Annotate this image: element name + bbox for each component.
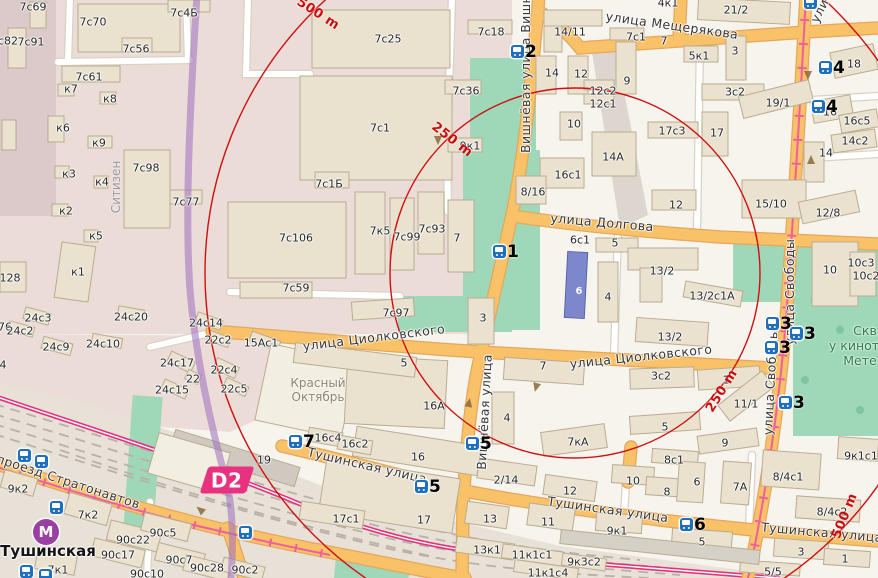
bus-stop-icon[interactable] (466, 437, 479, 450)
bus-stop-number: 3 (793, 393, 805, 413)
bus-stop-icon[interactable] (18, 449, 31, 462)
bus-stop-icon[interactable] (804, 0, 817, 9)
bus-stop-icon[interactable] (50, 501, 63, 514)
bus-stop-number: 3 (804, 324, 816, 344)
bus-stop-number: 2 (525, 42, 537, 62)
bus-stop-icon[interactable] (766, 317, 779, 330)
map-canvas[interactable]: 7с69с827с917с707с4Б7с567с61к7к8к6к9к3к4к… (0, 0, 878, 578)
bus-stop-icon[interactable] (779, 396, 792, 409)
bus-stop-icon[interactable] (20, 565, 33, 578)
oneway-arrow-icon (804, 71, 812, 80)
bus-stop-number: 1 (507, 242, 519, 262)
bus-stop-icon[interactable] (289, 435, 302, 448)
bus-stop-icon[interactable] (790, 327, 803, 340)
bus-stop-icon[interactable] (680, 518, 693, 531)
bus-stop-number: 5 (480, 434, 492, 454)
oneway-arrow-icon (464, 397, 473, 407)
d2-line-badge[interactable]: D2 (200, 467, 255, 494)
oneway-arrow-icon (434, 136, 442, 145)
metro-letter: М (39, 523, 54, 541)
bus-stop-number: 4 (826, 97, 838, 117)
bus-stop-number: 6 (694, 515, 706, 535)
bus-stop-icon[interactable] (819, 61, 832, 74)
bus-stop-icon[interactable] (415, 480, 428, 493)
bus-stop-number: 3 (779, 338, 791, 358)
d2-label: D2 (211, 468, 243, 492)
oneway-arrow-icon (807, 155, 815, 164)
bus-stop-icon[interactable] (39, 569, 52, 578)
bus-stop-number: 5 (429, 477, 441, 497)
bus-stop-number: 4 (833, 58, 845, 78)
bus-stop-icon[interactable] (511, 45, 524, 58)
metro-station-label: Тушинская (0, 542, 96, 560)
bus-stop-icon[interactable] (35, 455, 48, 468)
bus-stop-icon[interactable] (493, 245, 506, 258)
bus-stop-number: 7 (303, 432, 315, 452)
bus-stop-icon[interactable] (239, 526, 252, 539)
bus-stop-icon[interactable] (765, 341, 778, 354)
bus-stop-icon[interactable] (812, 100, 825, 113)
